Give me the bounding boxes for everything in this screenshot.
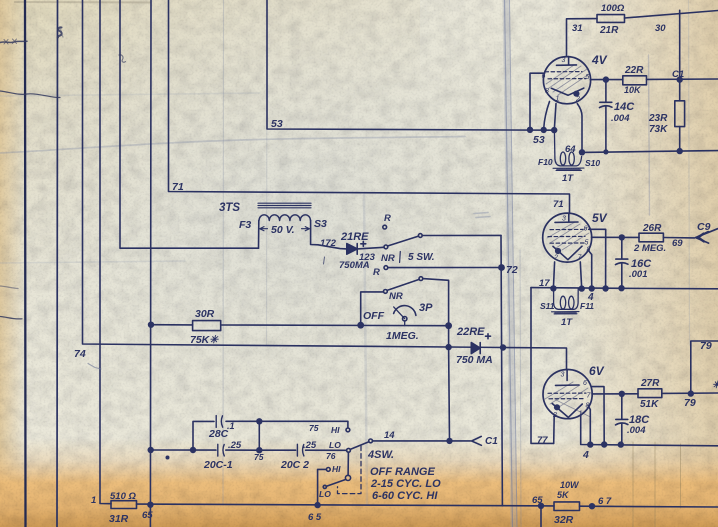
svg-text:75: 75 — [254, 452, 264, 462]
svg-text:53: 53 — [533, 134, 545, 146]
svg-text:72: 72 — [506, 264, 518, 276]
svg-text:5 SW.: 5 SW. — [408, 252, 434, 263]
svg-text:.004: .004 — [627, 425, 646, 436]
svg-text:.25: .25 — [303, 440, 317, 451]
svg-text:6: 6 — [542, 73, 546, 80]
svg-text:6: 6 — [584, 226, 588, 233]
svg-text:75K✳: 75K✳ — [190, 334, 219, 346]
svg-text:79: 79 — [700, 340, 712, 352]
svg-text:LO: LO — [319, 489, 331, 499]
svg-text:HI: HI — [331, 425, 340, 435]
svg-text:22RE: 22RE — [456, 326, 485, 338]
svg-text:5: 5 — [586, 74, 590, 81]
svg-text:71: 71 — [172, 181, 184, 193]
svg-text:53: 53 — [271, 118, 283, 130]
svg-text:6V: 6V — [589, 364, 605, 378]
svg-text:100Ω: 100Ω — [601, 3, 625, 14]
svg-text:23R: 23R — [648, 113, 668, 124]
svg-text:71: 71 — [553, 199, 564, 210]
svg-text:NR: NR — [381, 253, 395, 264]
svg-text:64: 64 — [565, 144, 576, 155]
svg-text:5V: 5V — [592, 211, 608, 225]
svg-text:21RE: 21RE — [340, 231, 369, 243]
svg-text:✳: ✳ — [712, 380, 718, 391]
svg-text:2 MEG.: 2 MEG. — [633, 243, 666, 254]
svg-text:8: 8 — [587, 247, 591, 254]
svg-text:5: 5 — [585, 240, 589, 247]
svg-text:14C: 14C — [614, 101, 635, 113]
svg-text:10W: 10W — [560, 480, 580, 490]
svg-text:2: 2 — [575, 96, 580, 103]
svg-text:73K: 73K — [649, 124, 668, 135]
svg-text:6: 6 — [583, 380, 587, 387]
svg-text:14: 14 — [384, 430, 395, 441]
svg-text:2: 2 — [553, 255, 558, 262]
svg-text:79: 79 — [684, 397, 696, 409]
svg-text:6-60 CYC. HI: 6-60 CYC. HI — [372, 490, 438, 502]
svg-text:3P: 3P — [419, 302, 433, 314]
svg-text:2-15 CYC. LO: 2-15 CYC. LO — [370, 478, 441, 490]
svg-text:3TS: 3TS — [219, 202, 240, 214]
svg-text:22R: 22R — [624, 65, 644, 76]
svg-text:R: R — [384, 213, 391, 224]
svg-text:31: 31 — [572, 23, 583, 34]
svg-text:74: 74 — [74, 348, 86, 360]
svg-text:32R: 32R — [554, 514, 574, 526]
svg-text:C9: C9 — [697, 221, 711, 233]
svg-text:8: 8 — [545, 88, 549, 95]
svg-text:75: 75 — [309, 423, 319, 433]
svg-text:1MEG.: 1MEG. — [386, 330, 419, 342]
svg-text:31R: 31R — [109, 513, 129, 525]
svg-text:2: 2 — [552, 412, 557, 419]
svg-text:8: 8 — [586, 403, 590, 410]
svg-text:4: 4 — [582, 449, 589, 461]
svg-text:1: 1 — [556, 96, 560, 103]
svg-text:S10: S10 — [585, 158, 600, 168]
svg-text:69: 69 — [672, 238, 683, 249]
svg-text:1: 1 — [91, 495, 96, 506]
svg-text:.001: .001 — [629, 269, 648, 280]
svg-text:3: 3 — [562, 216, 566, 223]
svg-text:F3: F3 — [239, 219, 251, 231]
svg-text:50 V.: 50 V. — [271, 224, 295, 236]
svg-text:65: 65 — [532, 495, 543, 506]
svg-text:NR: NR — [389, 291, 403, 302]
svg-text:510 Ω: 510 Ω — [110, 491, 136, 502]
svg-text:20C-1: 20C-1 — [203, 459, 233, 471]
svg-text:172: 172 — [320, 238, 337, 249]
svg-text:F10: F10 — [538, 157, 553, 167]
svg-text:76: 76 — [326, 451, 336, 461]
svg-text:S11: S11 — [540, 301, 555, 311]
svg-text:C1: C1 — [672, 69, 684, 80]
svg-text:4SW.: 4SW. — [367, 449, 394, 461]
svg-text:.004: .004 — [611, 113, 630, 124]
svg-text:1: 1 — [579, 411, 583, 418]
svg-text:4: 4 — [587, 292, 594, 303]
svg-text:6 5: 6 5 — [308, 512, 322, 523]
svg-text:R: R — [373, 267, 380, 278]
svg-text:65: 65 — [142, 510, 153, 521]
svg-text:17: 17 — [539, 278, 550, 289]
svg-text:20C 2: 20C 2 — [280, 459, 309, 471]
svg-text:.1: .1 — [227, 421, 235, 431]
svg-text:21R: 21R — [599, 25, 619, 36]
svg-text:OFF RANGE: OFF RANGE — [370, 466, 435, 478]
svg-text:750 MA: 750 MA — [456, 354, 493, 366]
svg-text:30R: 30R — [195, 308, 215, 320]
svg-text:4V: 4V — [591, 53, 608, 67]
svg-text:1T: 1T — [562, 173, 574, 184]
svg-text:1T: 1T — [561, 317, 573, 328]
svg-text:LO: LO — [329, 440, 341, 450]
svg-text:5K: 5K — [557, 490, 570, 500]
svg-text:HI: HI — [332, 464, 341, 474]
svg-text:OFF: OFF — [363, 310, 385, 322]
svg-text:51K: 51K — [640, 399, 659, 410]
svg-text:C1: C1 — [485, 436, 498, 447]
svg-text:3: 3 — [562, 57, 566, 64]
svg-text:77: 77 — [537, 435, 548, 446]
svg-text:28C: 28C — [208, 428, 229, 440]
svg-text:750MA: 750MA — [339, 260, 370, 271]
svg-text:6 7: 6 7 — [598, 496, 612, 507]
svg-text:26R: 26R — [642, 223, 662, 234]
svg-text:.25: .25 — [228, 440, 242, 451]
svg-text:27R: 27R — [640, 378, 660, 389]
svg-text:3: 3 — [561, 372, 565, 379]
svg-text:10K: 10K — [624, 85, 642, 95]
svg-text:30: 30 — [655, 23, 666, 34]
svg-text:S3: S3 — [314, 218, 327, 230]
